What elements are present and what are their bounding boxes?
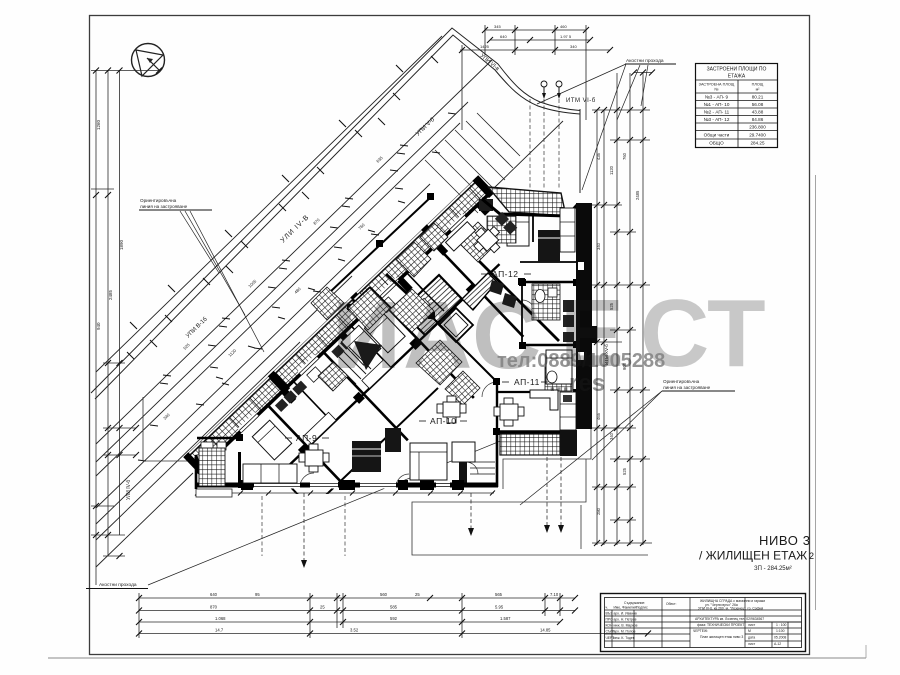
svg-text:525: 525 <box>182 342 191 351</box>
svg-text:А-12: А-12 <box>774 642 781 646</box>
svg-text:№: № <box>714 88 718 92</box>
svg-text:480: 480 <box>293 286 302 295</box>
svg-text:Общи части: Общи части <box>704 133 730 138</box>
svg-text:1260: 1260 <box>96 119 101 130</box>
svg-text:1890: 1890 <box>119 239 124 250</box>
svg-text:585: 585 <box>390 605 398 610</box>
svg-text:инж. К. Тодев: инж. К. Тодев <box>614 636 635 640</box>
svg-text:УЛИ IV-б: УЛИ IV-б <box>126 480 132 500</box>
svg-text:5.95: 5.95 <box>495 605 504 610</box>
svg-text:ЧЕРТЕЖ:: ЧЕРТЕЖ: <box>693 629 708 633</box>
svg-text:№1 - АП- 10: №1 - АП- 10 <box>704 102 730 107</box>
svg-text:340: 340 <box>570 44 577 49</box>
svg-text:3.52: 3.52 <box>350 628 359 633</box>
svg-text:29.7400: 29.7400 <box>749 133 766 138</box>
svg-text:565: 565 <box>495 592 503 597</box>
svg-text:84.86: 84.86 <box>752 117 764 122</box>
svg-text:1120: 1120 <box>227 347 237 357</box>
svg-text:95: 95 <box>255 592 260 597</box>
svg-text:ЗАСТРОЕНИ ПЛОЩИ ПО: ЗАСТРОЕНИ ПЛОЩИ ПО <box>707 67 767 73</box>
svg-text:640: 640 <box>500 34 507 39</box>
svg-text:арх. М. Попов: арх. М. Попов <box>614 630 636 634</box>
svg-text:1005: 1005 <box>247 278 258 289</box>
svg-text:АП-9: АП-9 <box>296 433 317 443</box>
svg-text:1425: 1425 <box>480 44 490 49</box>
svg-text:...res: ...res <box>549 370 605 397</box>
svg-text:760: 760 <box>622 152 627 160</box>
svg-text:640: 640 <box>210 592 218 597</box>
svg-text:345: 345 <box>494 24 501 29</box>
svg-text:Съдържание:: Съдържание: <box>624 601 645 605</box>
svg-text:дата: дата <box>748 636 755 640</box>
svg-text:№3 - АП- 9: №3 - АП- 9 <box>705 95 729 100</box>
svg-text:лист: лист <box>748 623 756 627</box>
svg-text:1.97 5: 1.97 5 <box>560 34 572 39</box>
svg-text:560: 560 <box>380 592 388 597</box>
svg-text:940: 940 <box>96 322 101 330</box>
svg-text:УПИ V-б: УПИ V-б <box>415 117 436 138</box>
svg-text:ИАС: ИАС <box>332 282 543 389</box>
svg-text:7.10: 7.10 <box>550 592 559 597</box>
svg-text:43.88: 43.88 <box>752 110 764 115</box>
svg-text:арх. И. Иванов: арх. И. Иванов <box>614 612 637 616</box>
svg-text:м²: м² <box>756 88 761 92</box>
svg-text:Име, Фамилия: Име, Фамилия <box>614 606 637 610</box>
svg-text:1120: 1120 <box>609 165 614 175</box>
svg-text:арх. Н. Петров: арх. Н. Петров <box>614 618 637 622</box>
svg-text:ПЛОЩ: ПЛОЩ <box>752 83 764 87</box>
svg-text:НИВО 3: НИВО 3 <box>759 533 811 548</box>
svg-text:ИТМ VI-б: ИТМ VI-б <box>566 98 596 104</box>
svg-text:2485: 2485 <box>635 190 640 200</box>
svg-text:АП-12: АП-12 <box>492 269 518 279</box>
svg-text:КОН: КОН <box>606 624 614 628</box>
svg-text:14.85: 14.85 <box>540 628 551 633</box>
svg-text:2485: 2485 <box>108 289 113 300</box>
svg-text:ч.: ч. <box>606 606 609 610</box>
svg-text:АП-10: АП-10 <box>430 416 456 426</box>
svg-text:ВЪЗ: ВЪЗ <box>606 612 613 616</box>
svg-text:Акостни прохода: Акостни прохода <box>99 582 137 588</box>
svg-text:435: 435 <box>596 152 601 160</box>
svg-text:линия на застрояване: линия на застрояване <box>140 204 188 209</box>
svg-text:05.2008: 05.2008 <box>774 636 786 640</box>
svg-text:Подпис: Подпис <box>636 606 648 610</box>
svg-text:Акостни прохода: Акостни прохода <box>626 58 664 64</box>
svg-text:Обект:: Обект: <box>666 602 677 606</box>
svg-text:инж. В. Марков: инж. В. Марков <box>614 624 638 628</box>
svg-text:1.068: 1.068 <box>215 616 226 621</box>
svg-text:УПИ IV-6, кв.260, м. "Лозенец": УПИ IV-6, кв.260, м. "Лозенец", гр. Софи… <box>698 607 763 611</box>
svg-text:Ориентировъчна: Ориентировъчна <box>140 198 177 203</box>
svg-text:760: 760 <box>357 222 366 231</box>
svg-text:1.587: 1.587 <box>500 616 511 621</box>
svg-text:№2 - АП- 11: №2 - АП- 11 <box>704 110 730 115</box>
svg-text:340: 340 <box>596 242 601 250</box>
svg-text:460: 460 <box>560 24 567 29</box>
svg-text:лист: лист <box>748 642 756 646</box>
svg-text:ОБЩО: ОБЩО <box>709 141 724 146</box>
svg-text:УПИ В-1б: УПИ В-1б <box>185 316 209 339</box>
svg-text:фаза: ТЕХНИЧЕСКИ ПРОЕКТ: фаза: ТЕХНИЧЕСКИ ПРОЕКТ <box>697 623 744 627</box>
svg-text:592: 592 <box>390 616 398 621</box>
svg-text:284.25: 284.25 <box>750 141 764 146</box>
svg-text:870: 870 <box>312 217 321 226</box>
svg-text:№3 - АП- 12: №3 - АП- 12 <box>704 117 730 122</box>
svg-text:АРХИТЕКТУРА кв. Лозенец тел.: АРХИТЕКТУРА кв. Лозенец тел. 02/9634567 <box>695 617 764 621</box>
svg-text:/ ЖИЛИЩЕН ЕТАЖ: / ЖИЛИЩЕН ЕТАЖ <box>699 549 807 563</box>
svg-text:1:100: 1:100 <box>776 629 785 633</box>
svg-text:ЗП - 284.25м²: ЗП - 284.25м² <box>754 566 792 572</box>
svg-text:280: 280 <box>596 507 601 515</box>
svg-text:80.21: 80.21 <box>752 95 764 100</box>
svg-text:14.7: 14.7 <box>215 628 224 633</box>
svg-text:870: 870 <box>210 605 218 610</box>
svg-text:340: 340 <box>162 412 171 421</box>
svg-text:План жилищен етаж ниво 3: План жилищен етаж ниво 3 <box>700 635 743 639</box>
svg-text:2: 2 <box>809 551 814 561</box>
svg-text:ПРО: ПРО <box>606 618 614 622</box>
svg-text:М: М <box>748 629 751 633</box>
svg-text:465: 465 <box>596 412 601 420</box>
svg-text:тел:0889/1005288: тел:0889/1005288 <box>497 350 665 372</box>
svg-text:56.08: 56.08 <box>752 102 764 107</box>
svg-text:ЕТАЖА: ЕТАЖА <box>728 74 746 80</box>
svg-text:1 : 100: 1 : 100 <box>776 623 786 627</box>
svg-text:25: 25 <box>320 605 325 610</box>
svg-text:635: 635 <box>375 155 384 164</box>
svg-text:525: 525 <box>622 467 627 475</box>
svg-text:ЗАСТРОЕНА ПЛОЩ: ЗАСТРОЕНА ПЛОЩ <box>699 83 735 87</box>
svg-text:236.800: 236.800 <box>749 125 766 130</box>
svg-text:25: 25 <box>415 592 420 597</box>
